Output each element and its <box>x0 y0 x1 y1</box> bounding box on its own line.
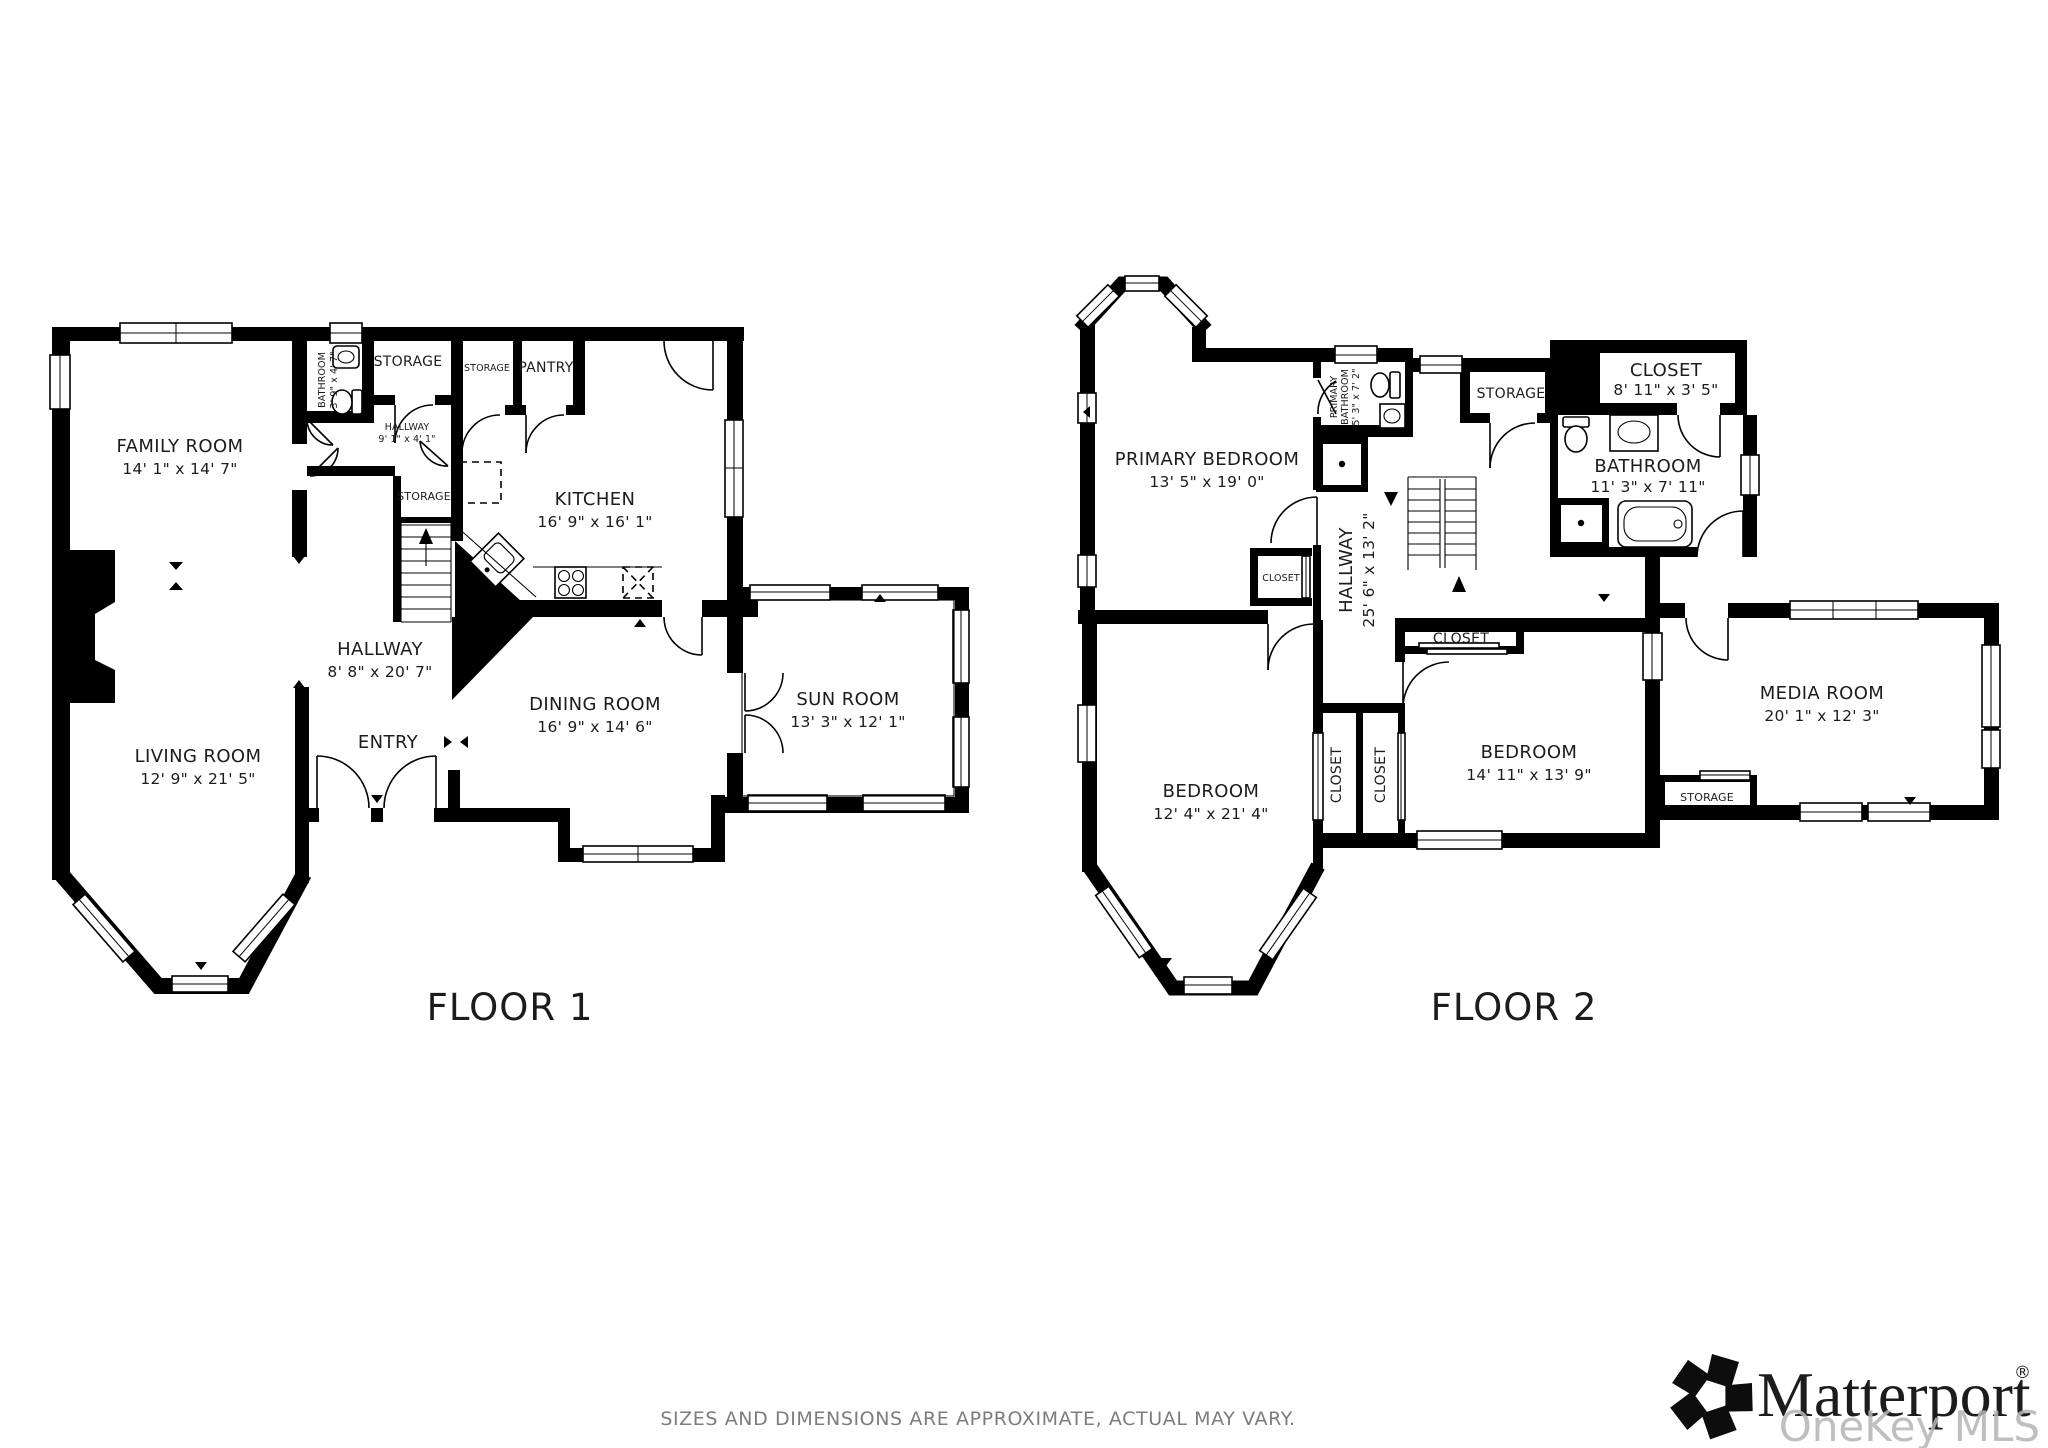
floorplan-page: FAMILY ROOM 14' 1" x 14' 7" LIVING ROOM … <box>0 0 2048 1448</box>
kitchen-label: KITCHEN <box>555 489 636 510</box>
closet-top-dims: 8' 11" x 3' 5" <box>1613 381 1718 399</box>
hallway2-dims: 25' 6" x 13' 2" <box>1360 512 1378 627</box>
floor1-caption: FLOOR 1 <box>427 986 594 1029</box>
floor1-plan: FAMILY ROOM 14' 1" x 14' 7" LIVING ROOM … <box>50 323 969 1029</box>
kitchen-dims: 16' 9" x 16' 1" <box>537 513 652 531</box>
closet-bed2-side-label: CLOSET <box>1373 747 1389 803</box>
primary-bedroom-dims: 13' 5" x 19' 0" <box>1149 473 1264 491</box>
kitchen-stove <box>555 567 586 598</box>
bathroom2-toilet <box>1563 417 1589 452</box>
sun-room-dims: 13' 3" x 12' 1" <box>790 713 905 731</box>
floor1-windows <box>50 323 969 992</box>
bedroom2-label: BEDROOM <box>1481 742 1578 763</box>
closet-top-label: CLOSET <box>1630 360 1703 381</box>
primary-toilet <box>1371 372 1400 398</box>
primary-sink <box>1380 404 1405 428</box>
bathroom2-tub <box>1618 501 1692 547</box>
bedroom1-dims: 12' 4" x 21' 4" <box>1153 805 1268 823</box>
floor2-plan: PRIMARY BEDROOM 13' 5" x 19' 0" PRIMARY … <box>1077 276 2000 1029</box>
primary-shower-drain <box>1339 461 1345 467</box>
media-room-label: MEDIA ROOM <box>1760 683 1884 704</box>
bedroom1-label: BEDROOM <box>1163 781 1260 802</box>
primary-bedroom-label: PRIMARY BEDROOM <box>1115 449 1300 470</box>
family-room-dims: 14' 1" x 14' 7" <box>122 460 237 478</box>
bathroom2-label: BATHROOM <box>1594 456 1701 477</box>
kitchen-fridge-dashed <box>460 462 501 503</box>
registered-mark: ® <box>2014 1363 2031 1383</box>
primary-bathroom-label-1: PRIMARY <box>1329 376 1340 418</box>
floor2-caption: FLOOR 2 <box>1431 986 1598 1029</box>
hallway-small-dims: 9' 1" x 4' 1" <box>378 434 435 445</box>
floorplan-drawing: FAMILY ROOM 14' 1" x 14' 7" LIVING ROOM … <box>0 0 2048 1448</box>
pantry-label: PANTRY <box>518 360 573 376</box>
hallway2-label: HALLWAY <box>1336 527 1357 613</box>
storage-top-label: STORAGE <box>374 354 443 370</box>
living-room-dims: 12' 9" x 21' 5" <box>140 770 255 788</box>
hallway-label: HALLWAY <box>337 639 423 660</box>
storage-f2-label: STORAGE <box>1477 386 1546 402</box>
primary-bathroom-label-2: BATHROOM <box>1340 369 1351 425</box>
dining-room-label: DINING ROOM <box>529 694 661 715</box>
bathroom-f1-dims: 3' 9" x 4' 7" <box>329 351 340 408</box>
footer: SIZES AND DIMENSIONS ARE APPROXIMATE, AC… <box>660 1354 2040 1448</box>
family-room-label: FAMILY ROOM <box>117 436 244 457</box>
bathroom2-dims: 11' 3" x 7' 11" <box>1590 478 1705 496</box>
hallway-small-label: HALLWAY <box>385 422 430 433</box>
bathroom2-shower <box>1554 498 1609 549</box>
storage-media-label: STORAGE <box>1680 791 1734 804</box>
closet-bed1-label: CLOSET <box>1329 747 1345 803</box>
storage-2-label: STORAGE <box>464 363 510 374</box>
closet-bed2-top-label: CLOSET <box>1433 631 1489 647</box>
kitchen-dishwasher-dashed <box>623 567 653 598</box>
bathroom-f1-label: BATHROOM <box>317 352 328 408</box>
disclaimer-text: SIZES AND DIMENSIONS ARE APPROXIMATE, AC… <box>660 1408 1295 1430</box>
closet-small-label: CLOSET <box>1262 573 1300 584</box>
floor1-stairs <box>401 517 451 622</box>
entry-label: ENTRY <box>358 732 419 753</box>
primary-bathroom-dims: 5' 3" x 7' 2" <box>1351 368 1362 425</box>
hallway-dims: 8' 8" x 20' 7" <box>327 663 432 681</box>
floor1-walls <box>52 327 969 986</box>
sun-room-label: SUN ROOM <box>796 689 899 710</box>
dining-room-dims: 16' 9" x 14' 6" <box>537 718 652 736</box>
media-room-dims: 20' 1" x 12' 3" <box>1764 707 1879 725</box>
onekey-watermark: OneKey MLS <box>1779 1402 2040 1448</box>
floor2-windows <box>1077 276 2000 994</box>
bedroom2-dims: 14' 11" x 13' 9" <box>1466 766 1592 784</box>
floor2-stairs <box>1384 477 1476 592</box>
bathroom2-sink <box>1610 415 1658 451</box>
living-room-label: LIVING ROOM <box>135 746 262 767</box>
storage-mid-label: STORAGE <box>397 490 451 503</box>
matterport-logo-icon <box>1665 1354 1760 1446</box>
